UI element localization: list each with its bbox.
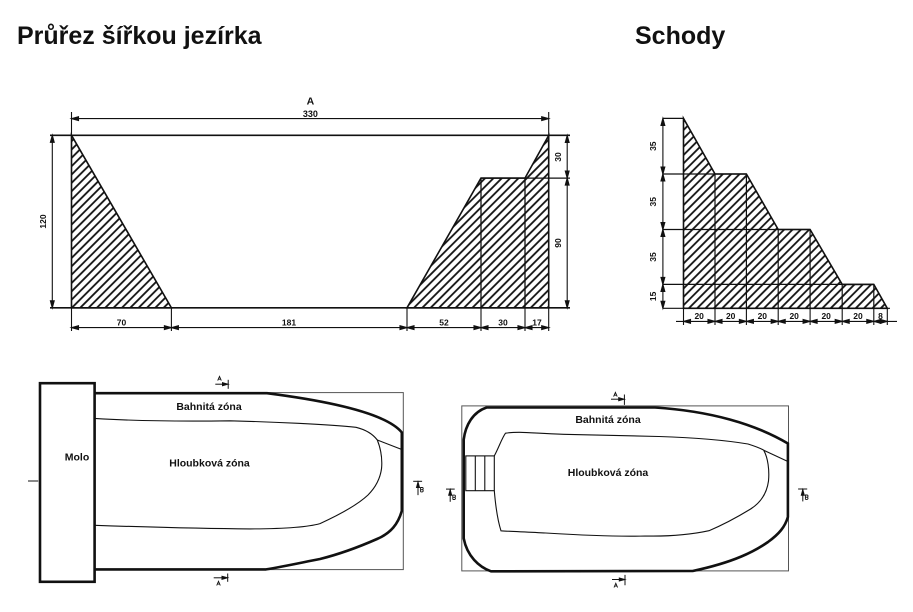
svg-text:30: 30 <box>498 318 508 328</box>
svg-text:17: 17 <box>532 318 542 328</box>
svg-text:70: 70 <box>117 318 127 328</box>
svg-text:20: 20 <box>821 311 831 321</box>
svg-text:Schody: Schody <box>635 22 725 50</box>
svg-text:35: 35 <box>648 252 658 262</box>
svg-text:20: 20 <box>853 311 863 321</box>
svg-text:35: 35 <box>648 197 658 207</box>
svg-text:Bahnitá zóna: Bahnitá zóna <box>176 401 241 413</box>
svg-text:20: 20 <box>758 311 768 321</box>
svg-text:330: 330 <box>303 109 318 119</box>
svg-text:8: 8 <box>878 311 883 321</box>
svg-text:20: 20 <box>789 311 799 321</box>
svg-text:Bahnitá zóna: Bahnitá zóna <box>575 414 640 426</box>
svg-text:20: 20 <box>726 311 736 321</box>
svg-text:20: 20 <box>694 311 704 321</box>
svg-text:A: A <box>307 95 315 107</box>
svg-text:181: 181 <box>282 318 296 328</box>
svg-text:52: 52 <box>439 318 449 328</box>
svg-text:120: 120 <box>38 214 48 228</box>
svg-text:Průřez šířkou jezírka: Průřez šířkou jezírka <box>17 22 263 50</box>
svg-text:90: 90 <box>553 238 563 248</box>
svg-text:30: 30 <box>553 152 563 162</box>
svg-text:15: 15 <box>648 291 658 301</box>
svg-text:Molo: Molo <box>65 452 90 464</box>
svg-text:35: 35 <box>648 141 658 151</box>
svg-text:Hloubková zóna: Hloubková zóna <box>169 458 250 470</box>
svg-text:Hloubková zóna: Hloubková zóna <box>568 467 649 479</box>
